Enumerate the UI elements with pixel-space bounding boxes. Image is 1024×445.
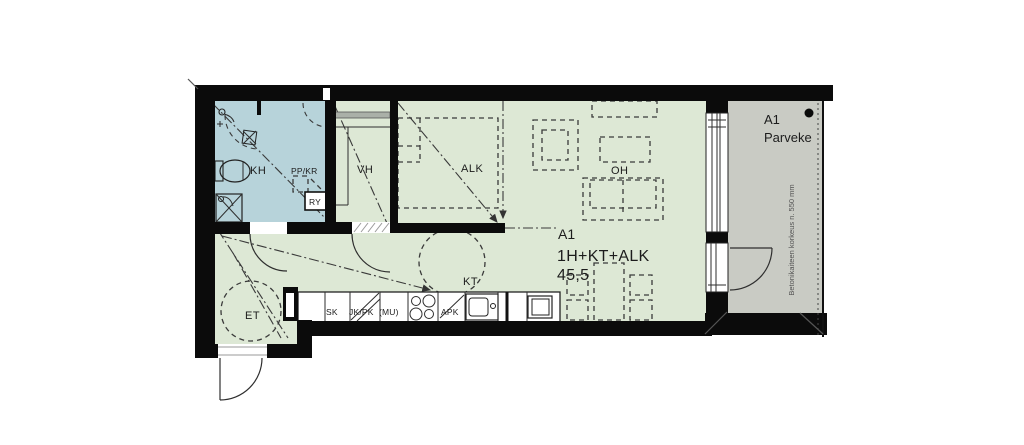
- room-label-kitchenette: KT: [463, 276, 478, 288]
- wall-bath-closet: [325, 101, 336, 222]
- entry-door-opening: [218, 344, 267, 358]
- floorplan-canvas: KH PP/KR RY VH ALK OH KT ET SK JK/PK (MU…: [0, 0, 1024, 445]
- wall-entry-left: [195, 344, 218, 358]
- kitchen-stub-slot: [286, 293, 294, 317]
- wall-right-mid: [706, 232, 728, 243]
- label-laundry: PP/KR: [291, 166, 318, 176]
- entry-floor: [208, 225, 308, 347]
- wall-left: [195, 85, 215, 358]
- top-wall-notch: [323, 88, 330, 100]
- wall-right-low: [706, 292, 728, 315]
- apartment-type: 1H+KT+ALK: [557, 248, 650, 265]
- balcony-id: A1: [764, 112, 780, 127]
- bathroom-door-opening: [250, 222, 287, 234]
- room-label-entry: ET: [245, 310, 260, 322]
- label-microwave: (MU): [379, 307, 399, 317]
- wall-bath-bottom-1: [215, 222, 250, 234]
- room-label-bathroom: KH: [250, 165, 266, 177]
- wall-shower-stub: [257, 101, 261, 115]
- entry-door: [220, 358, 262, 400]
- balcony-name: Parveke: [764, 130, 812, 145]
- wall-right-top: [706, 101, 728, 113]
- tick-top-left: [188, 79, 198, 89]
- label-distribution-board: RY: [309, 197, 321, 207]
- floorplan-drawing: KH PP/KR RY VH ALK OH KT ET SK JK/PK (MU…: [0, 0, 1024, 445]
- room-label-closet: VH: [357, 164, 373, 176]
- balcony-door-frame: [706, 243, 728, 292]
- wall-bath-bottom-2: [287, 222, 352, 234]
- label-fridge: JK/PK: [349, 307, 374, 317]
- apartment-id: A1: [558, 226, 575, 242]
- room-label-alcove: ALK: [461, 163, 483, 175]
- label-cabinet: SK: [326, 307, 338, 317]
- room-label-living: OH: [611, 165, 629, 177]
- wall-bottom-main: [297, 321, 712, 336]
- apartment-area: 45,5: [557, 267, 589, 284]
- wall-alcove-bottom: [390, 223, 505, 233]
- sink: [466, 294, 498, 320]
- closet-door-opening: [352, 222, 390, 233]
- balcony-dot: [805, 109, 814, 118]
- balcony-window: [706, 113, 728, 232]
- wall-closet-alcove: [390, 101, 398, 232]
- wall-top: [195, 85, 833, 101]
- balcony-railing-note: Betonikaiteen korkeus n. 550 mm: [787, 184, 796, 295]
- label-dishwasher: APK: [441, 307, 459, 317]
